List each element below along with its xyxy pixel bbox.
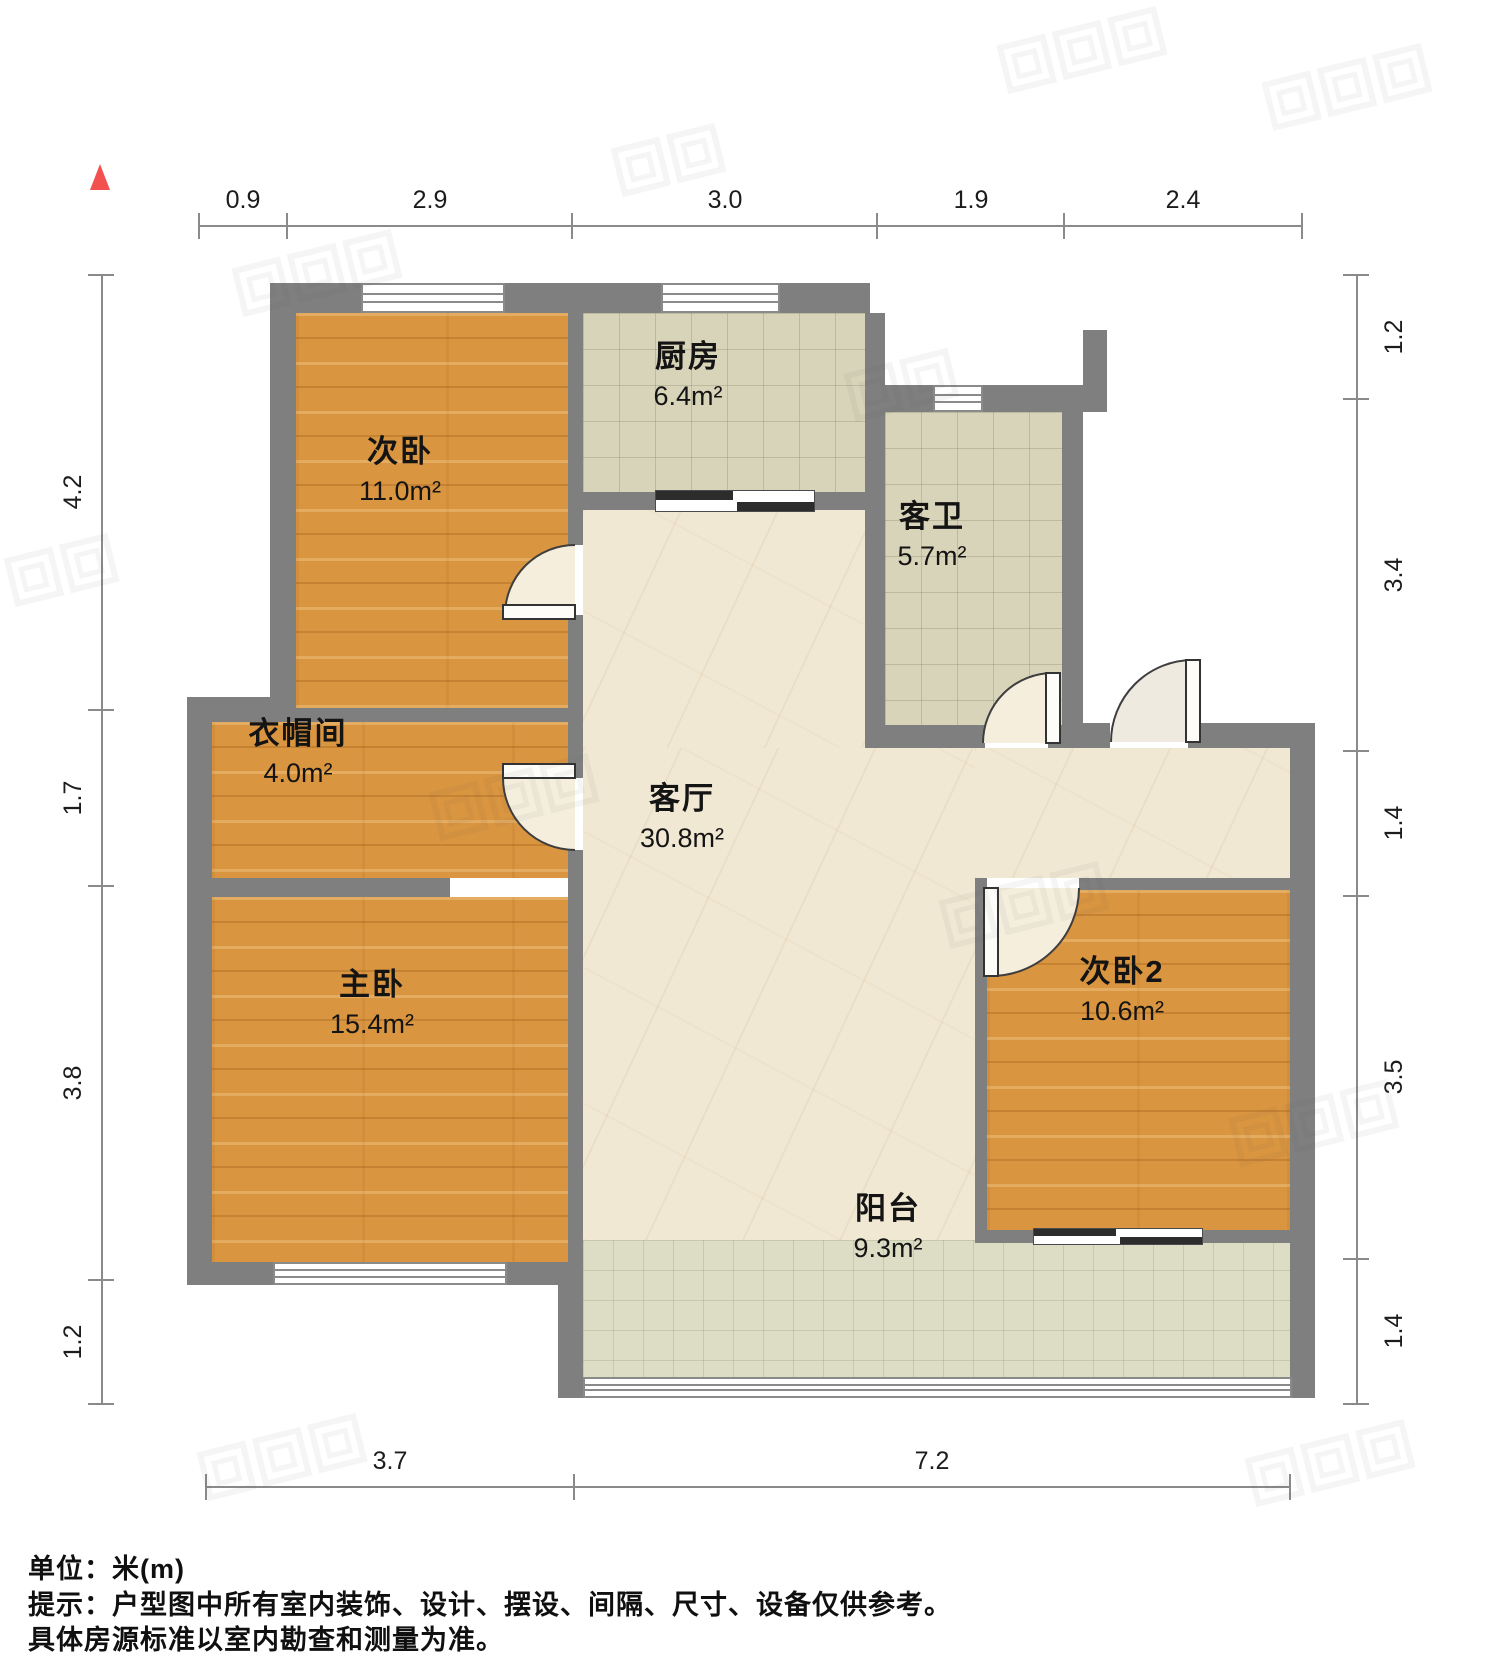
footer-unit: 单位：米(m) bbox=[28, 1547, 185, 1586]
room-area: 6.4m² bbox=[588, 381, 788, 412]
dim-tick bbox=[1343, 1403, 1369, 1405]
north-arrow-icon bbox=[90, 164, 110, 190]
footer-note1: 提示：户型图中所有室内装饰、设计、摆设、间隔、尺寸、设备仅供参考。 bbox=[28, 1583, 952, 1622]
dim-tick bbox=[88, 885, 114, 887]
dim-tick bbox=[88, 1279, 114, 1281]
dim-line-left bbox=[101, 275, 103, 1405]
dim-value: 2.4 bbox=[1143, 186, 1223, 212]
dim-value: 1.7 bbox=[59, 758, 85, 838]
room-area: 10.6m² bbox=[1022, 996, 1222, 1027]
wall bbox=[568, 850, 583, 1285]
room-name: 厨房 bbox=[588, 340, 788, 374]
dim-value: 1.2 bbox=[59, 1302, 85, 1382]
room-area: 4.0m² bbox=[198, 758, 398, 789]
wall bbox=[187, 878, 450, 897]
room-label-kitchen: 厨房 6.4m² bbox=[588, 340, 788, 412]
wall bbox=[568, 283, 583, 545]
floor-plan-canvas: 次卧 11.0m² 厨房 6.4m² 客卫 5.7m² 衣帽间 4.0m² 客厅… bbox=[0, 0, 1503, 1676]
sliding-door-kitchen bbox=[655, 490, 815, 512]
room-name: 主卧 bbox=[272, 968, 472, 1002]
dim-tick bbox=[1343, 750, 1369, 752]
balcony-railing bbox=[583, 1377, 1292, 1398]
room-name: 衣帽间 bbox=[198, 717, 398, 751]
watermark bbox=[1261, 43, 1432, 131]
wall bbox=[270, 283, 296, 722]
dim-line-top bbox=[199, 225, 1302, 227]
room-name: 次卧 bbox=[300, 435, 500, 469]
dim-tick bbox=[1343, 1258, 1369, 1260]
dim-tick bbox=[571, 213, 573, 239]
sliding-door-leaf bbox=[1034, 1229, 1116, 1236]
dim-value: 2.9 bbox=[390, 186, 470, 212]
room-floor-living-hall bbox=[975, 748, 1290, 878]
wall bbox=[558, 1285, 583, 1398]
room-area: 15.4m² bbox=[272, 1009, 472, 1040]
dim-tick bbox=[88, 709, 114, 711]
wall bbox=[885, 725, 985, 748]
wall bbox=[1083, 723, 1110, 748]
room-floor-master bbox=[212, 897, 568, 1262]
room-area: 30.8m² bbox=[582, 823, 782, 854]
room-label-bedroom2: 次卧 11.0m² bbox=[300, 435, 500, 507]
dim-value: 4.2 bbox=[59, 452, 85, 532]
watermark bbox=[996, 6, 1167, 94]
room-label-bedroom3: 次卧2 10.6m² bbox=[1022, 955, 1222, 1027]
sliding-door-leaf bbox=[1120, 1237, 1202, 1244]
wall bbox=[1290, 723, 1315, 1398]
dim-tick bbox=[1343, 274, 1369, 276]
dim-tick bbox=[88, 274, 114, 276]
dim-tick bbox=[573, 1474, 575, 1500]
room-name: 次卧2 bbox=[1022, 955, 1222, 989]
wall bbox=[1062, 412, 1083, 748]
room-area: 9.3m² bbox=[788, 1233, 988, 1264]
dim-value: 7.2 bbox=[892, 1447, 972, 1473]
dim-tick bbox=[1343, 398, 1369, 400]
room-floor-living-upper bbox=[583, 510, 865, 748]
dim-tick bbox=[198, 213, 200, 239]
dim-tick bbox=[1063, 213, 1065, 239]
wall bbox=[1079, 878, 1290, 890]
window-master bbox=[273, 1262, 507, 1285]
wall bbox=[1048, 725, 1062, 748]
dim-tick bbox=[1343, 895, 1369, 897]
dim-value: 1.9 bbox=[931, 186, 1011, 212]
dim-line-bottom bbox=[206, 1486, 1290, 1488]
dim-tick bbox=[286, 213, 288, 239]
dim-value: 3.4 bbox=[1380, 535, 1406, 615]
room-floor-bedroom2 bbox=[296, 313, 568, 708]
room-name: 客厅 bbox=[582, 782, 782, 816]
room-label-master: 主卧 15.4m² bbox=[272, 968, 472, 1040]
dim-line-right bbox=[1356, 275, 1358, 1405]
sliding-door-bedroom3-balcony bbox=[1033, 1228, 1203, 1245]
room-area: 11.0m² bbox=[300, 476, 500, 507]
room-name: 阳台 bbox=[788, 1192, 988, 1226]
room-label-cloakroom: 衣帽间 4.0m² bbox=[198, 717, 398, 789]
dim-tick bbox=[876, 213, 878, 239]
dim-tick bbox=[1301, 213, 1303, 239]
window-bedroom2 bbox=[361, 283, 505, 313]
room-name: 客卫 bbox=[832, 500, 1032, 534]
sliding-door-leaf bbox=[737, 502, 814, 511]
room-floor-bedroom3 bbox=[987, 890, 1290, 1230]
wall bbox=[1083, 330, 1107, 390]
dim-tick bbox=[88, 1403, 114, 1405]
dim-value: 1.4 bbox=[1380, 1291, 1406, 1371]
room-area: 5.7m² bbox=[832, 541, 1032, 572]
room-label-balcony: 阳台 9.3m² bbox=[788, 1192, 988, 1264]
watermark bbox=[1244, 1419, 1415, 1507]
dim-value: 1.4 bbox=[1380, 783, 1406, 863]
sliding-door-leaf bbox=[656, 491, 733, 500]
footer-note2: 具体房源标准以室内勘查和测量为准。 bbox=[28, 1618, 504, 1657]
dim-value: 3.8 bbox=[59, 1043, 85, 1123]
room-label-living: 客厅 30.8m² bbox=[582, 782, 782, 854]
window-kitchen bbox=[661, 283, 780, 313]
room-label-bathroom: 客卫 5.7m² bbox=[832, 500, 1032, 572]
dim-value: 0.9 bbox=[203, 186, 283, 212]
dim-value: 1.2 bbox=[1380, 297, 1406, 377]
door-entry bbox=[1111, 660, 1200, 742]
dim-value: 3.0 bbox=[685, 186, 765, 212]
